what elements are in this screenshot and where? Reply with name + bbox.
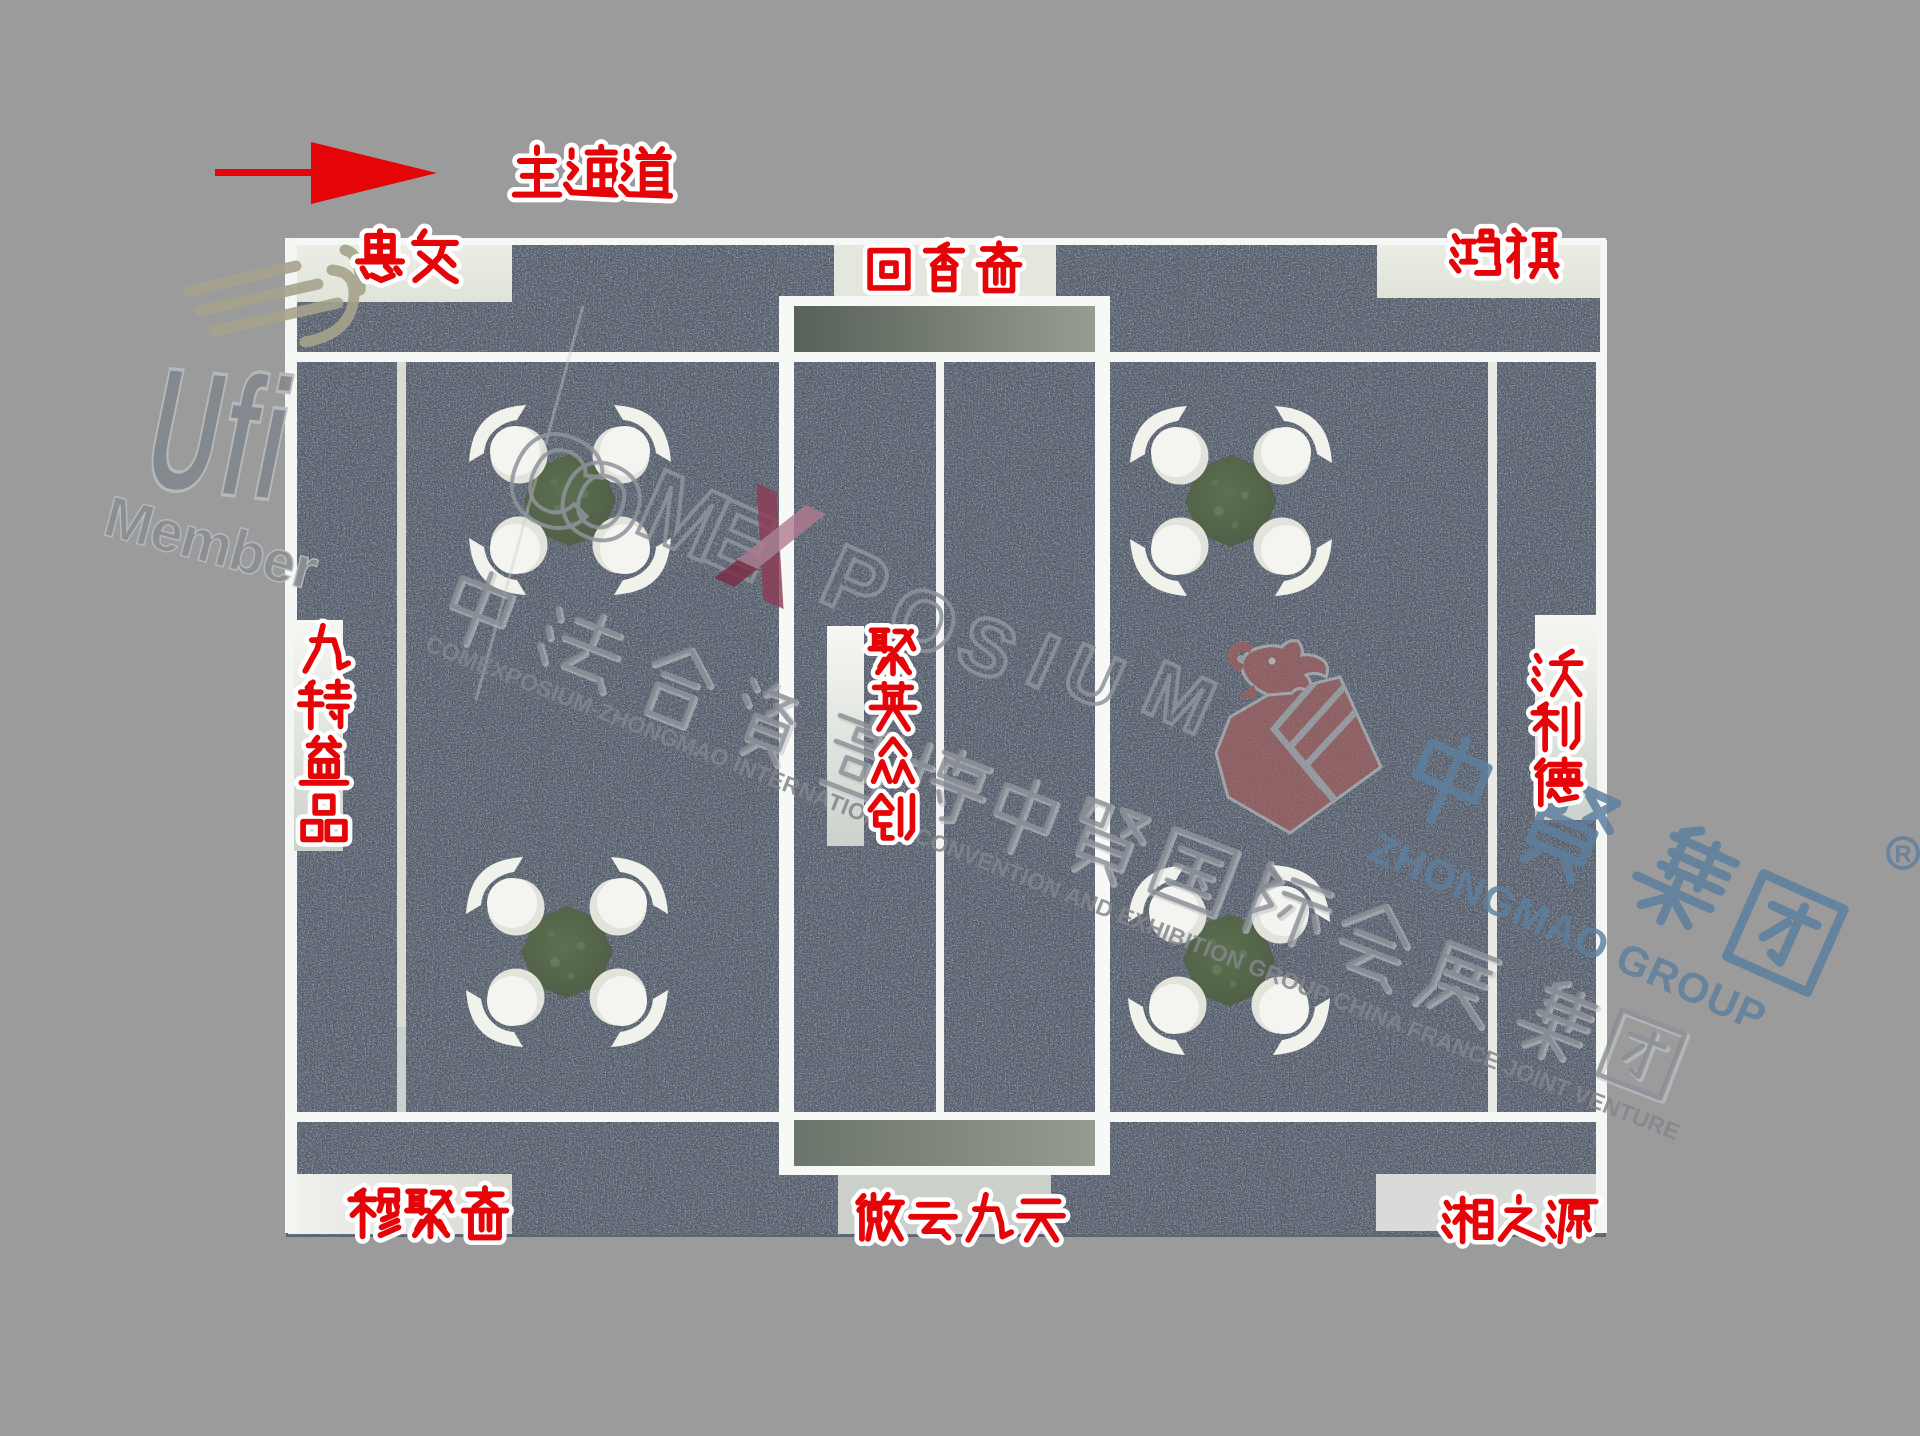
svg-text:R: R — [1894, 841, 1911, 868]
